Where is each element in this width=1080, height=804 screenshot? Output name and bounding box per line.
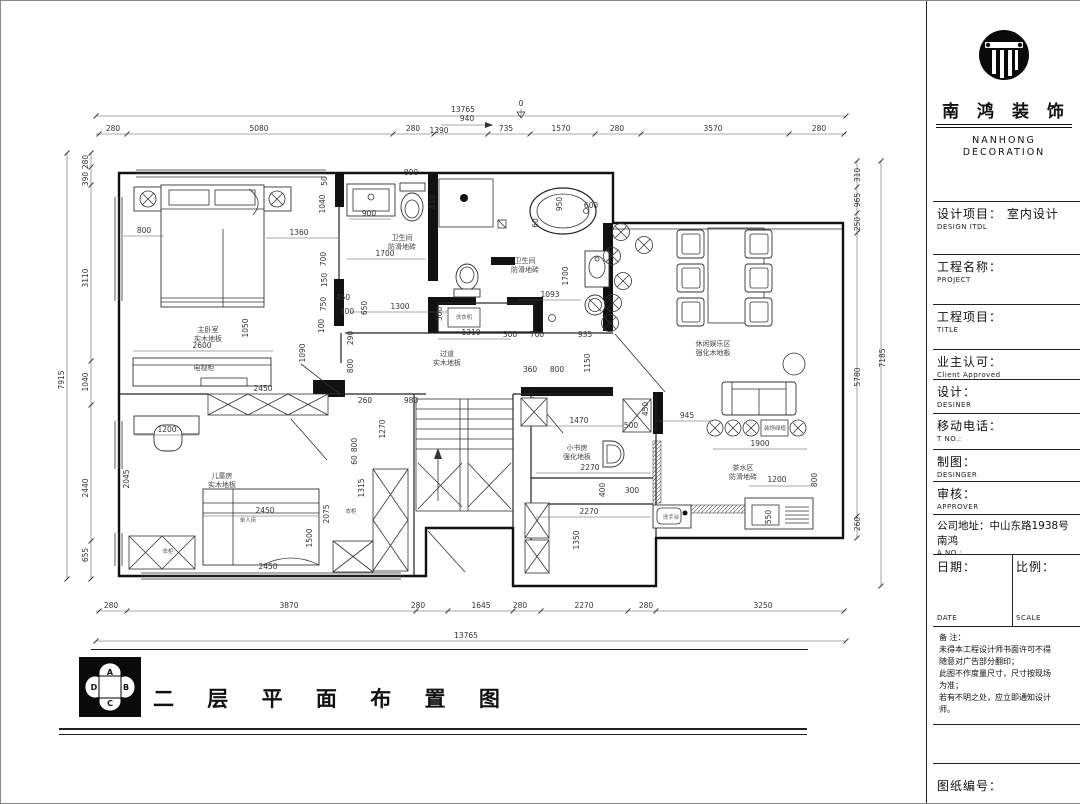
chairs	[677, 230, 772, 326]
dimension-label: 280	[406, 124, 421, 133]
field-designer: 设计： DESINER	[933, 379, 1080, 413]
dimension-label: 100	[317, 319, 326, 334]
room-label: 洗衣机	[456, 313, 473, 321]
room-label: 实木地板	[194, 334, 222, 343]
dimension-label: 650	[360, 301, 369, 316]
dimension-label: 7915	[57, 370, 66, 389]
dimension-label: 13765	[454, 631, 478, 640]
room-label: 儿童房	[212, 471, 233, 480]
room-label: 强化木地板	[696, 348, 731, 357]
room-label: 洗手台	[663, 513, 680, 521]
master-bed	[134, 185, 291, 307]
scale-cell: 比例： SCALE	[1012, 555, 1080, 626]
dimension-label: 800	[404, 168, 419, 177]
dimension-label: 280	[639, 601, 654, 610]
room-label: 实木地板	[208, 480, 236, 489]
child-bed	[203, 489, 319, 565]
dimension-label: 800	[350, 438, 359, 453]
dimension-label: 300	[503, 330, 518, 339]
dimension-label: 5080	[249, 124, 268, 133]
dimension-label: 935	[578, 330, 593, 339]
dimension-label: 280	[106, 124, 121, 133]
dimension-label: 1700	[561, 266, 570, 285]
room-label: 主卧室	[198, 325, 219, 334]
field-project-title: 工程项目： TITLE	[933, 304, 1080, 349]
dimension-label: 280	[104, 601, 119, 610]
room-label: 装饰绿植	[764, 424, 787, 432]
field-date-scale: 日期： DATE 比例： SCALE	[933, 554, 1080, 626]
dimension-label: 450	[336, 293, 351, 302]
footer-rule-top	[91, 649, 808, 650]
dimension-label: 2440	[81, 478, 90, 497]
dimension-label: 1300	[390, 302, 409, 311]
dimension-label: 300	[625, 486, 640, 495]
room-label: 卫生间	[392, 233, 413, 242]
dimension-label: 250	[853, 217, 862, 232]
dimension-label: 1040	[81, 372, 90, 391]
title-underline-2	[59, 734, 807, 735]
dimension-label: 1270	[378, 419, 387, 438]
dimension-label: 1200	[157, 425, 176, 434]
dimension-label: 900	[362, 209, 377, 218]
room-label: 休闲娱乐区	[696, 339, 731, 348]
dimension-label: 700	[319, 252, 328, 267]
empty-block	[933, 724, 1080, 763]
dimension-label: 1315	[357, 478, 366, 497]
dimension-label: 810	[428, 195, 437, 210]
room-label: 防滑地砖	[388, 242, 416, 251]
field-approver: 审核： APPROVER	[933, 481, 1080, 514]
dimension-label: 3570	[703, 124, 722, 133]
field-client-approved: 业主认可： Client Approved	[933, 349, 1080, 379]
room-label: 单人床	[240, 516, 257, 524]
room-label: 强化地板	[563, 452, 591, 461]
sofa	[722, 382, 796, 415]
company-name: 南 鸿 装 饰	[936, 97, 1072, 128]
company-name-en1: NANHONG	[927, 135, 1080, 146]
dimension-label: 600	[584, 201, 599, 210]
dimension-label: 1900	[750, 439, 769, 448]
dimension-label: 1050	[241, 318, 250, 337]
dimension-label: 50	[320, 176, 329, 186]
stairs-up-arrow-icon	[434, 448, 442, 459]
dimension-label: 13765	[451, 105, 475, 114]
toilet-1	[400, 183, 425, 221]
dimension-label: 980	[404, 396, 419, 405]
tv-cabinet	[133, 358, 271, 386]
bar-counter	[745, 498, 813, 529]
dimension-label: 280	[411, 601, 426, 610]
title-block: 南 鸿 装 饰 NANHONG DECORATION 设计项目： 室内设计 DE…	[926, 1, 1080, 803]
company-name-en2: DECORATION	[927, 147, 1080, 158]
dimension-label: 1093	[540, 290, 559, 299]
column-logo-icon	[974, 27, 1034, 85]
dimension-label: 655	[81, 548, 90, 563]
dimension-label: 940	[460, 114, 475, 123]
field-mobile-phone: 移动电话： T NO.:	[933, 413, 1080, 449]
date-cell: 日期： DATE	[933, 555, 1013, 626]
dimension-label: 3250	[753, 601, 772, 610]
room-label: 实木地板	[433, 358, 461, 367]
dimension-label: 965	[853, 193, 862, 208]
dimension-label: 500	[624, 421, 639, 430]
dimension-label: 1360	[289, 228, 308, 237]
field-drawing-number: 图纸编号：	[933, 763, 1080, 803]
field-drafter: 制图： DESINGER	[933, 449, 1080, 481]
field-company-address: 公司地址：中山东路1938号南鸿 A NO.:	[933, 514, 1080, 554]
room-label: 防滑地砖	[511, 265, 539, 274]
room-label: 茶水区	[733, 463, 754, 472]
round-stool	[783, 353, 805, 375]
washing-machine	[585, 295, 605, 315]
compass-letter-a: A	[107, 668, 114, 677]
dimension-label: 1040	[318, 194, 327, 213]
compass-letter-d: D	[91, 683, 98, 692]
dimension-label: 800	[810, 473, 819, 488]
dimension-label: 60	[531, 218, 540, 228]
dimension-label: 280	[812, 124, 827, 133]
notes-block: 备 注： 未得本工程设计师书面许可不得 随意对广告部分翻印； 此图不作度量尺寸，…	[933, 626, 1080, 724]
title-underline-1	[59, 728, 807, 730]
dimension-label: 2270	[580, 463, 599, 472]
dimension-label: 390	[81, 172, 90, 187]
drawing-sheet: 1376502805080280139094073515702803570280…	[0, 0, 1080, 804]
room-label: 衣柜	[345, 507, 357, 515]
room-label: 防滑地砖	[729, 472, 757, 481]
compass-letter-b: B	[123, 683, 129, 692]
dimension-label: 1350	[572, 530, 581, 549]
room-label: 卫生间	[515, 256, 536, 265]
dimension-label: 800	[550, 365, 565, 374]
drawing-title: 二 层 平 面 布 置 图	[153, 683, 513, 713]
dimension-label: 280	[513, 601, 528, 610]
dimension-label: 5780	[853, 367, 862, 386]
field-project-name: 工程名称： PROJECT	[933, 254, 1080, 304]
dimension-label: 450	[641, 402, 650, 417]
field-design-item: 设计项目： 室内设计 DESIGN ITDL	[933, 201, 1080, 254]
dimension-label: 2270	[579, 507, 598, 516]
dimension-label: 290	[346, 331, 355, 346]
dimension-label: 1570	[551, 124, 570, 133]
dimension-label: 150	[320, 273, 329, 288]
dimension-label: 2450	[253, 384, 272, 393]
dimension-label: 2450	[255, 506, 274, 515]
compass-letter-c: C	[107, 699, 113, 708]
dimension-label: 550	[764, 510, 773, 525]
dimension-label: 300	[340, 307, 355, 316]
dimension-label: 7185	[878, 348, 887, 367]
staircase	[416, 399, 513, 511]
room-label: 过道	[440, 349, 454, 358]
dimension-label: 360	[523, 365, 538, 374]
washbasin	[585, 251, 609, 287]
dimension-label: 2450	[258, 562, 277, 571]
dimension-label: 1150	[583, 353, 592, 372]
shower-area	[439, 179, 506, 228]
dimension-label: 1090	[298, 343, 307, 362]
dimension-label: 500	[435, 307, 444, 322]
dimension-label: 400	[598, 483, 607, 498]
dimension-label: 1500	[305, 528, 314, 547]
company-logo-block: 南 鸿 装 饰 NANHONG DECORATION	[927, 1, 1080, 201]
room-label: 小书房	[567, 443, 588, 452]
room-label: 衣柜	[162, 547, 174, 555]
compass-icon: A B C D	[79, 657, 141, 717]
dimension-label: 1200	[767, 475, 786, 484]
dimension-label: 945	[680, 411, 695, 420]
dimension-label: 2075	[322, 504, 331, 523]
dimension-label: 950	[555, 197, 564, 212]
dimension-label: 1470	[569, 416, 588, 425]
study-chair	[603, 441, 624, 467]
dimension-label: 3110	[81, 268, 90, 287]
dimension-label: 0	[519, 99, 524, 108]
dimension-label: 310	[853, 168, 862, 183]
room-label: 电视柜	[194, 363, 215, 372]
dimension-label: 3870	[279, 601, 298, 610]
dimension-label: 1390	[429, 126, 448, 135]
dimension-label: 700	[530, 330, 545, 339]
dimension-label: 280	[81, 155, 90, 170]
dimension-label: 800	[137, 226, 152, 235]
dimension-label: 280	[610, 124, 625, 133]
dimension-label: 750	[319, 297, 328, 312]
dimension-label: 1310	[461, 328, 480, 337]
dimension-label: 2270	[574, 601, 593, 610]
dimension-label: 260	[358, 396, 373, 405]
dimension-label: 60	[350, 455, 359, 465]
plant-row	[707, 420, 806, 436]
dimension-label: 260	[853, 517, 862, 532]
dimension-label: 735	[499, 124, 514, 133]
dimension-label: 2045	[122, 469, 131, 488]
toilet-2	[454, 264, 480, 297]
dimension-label: 800	[346, 359, 355, 374]
dimension-label: 1645	[471, 601, 490, 610]
